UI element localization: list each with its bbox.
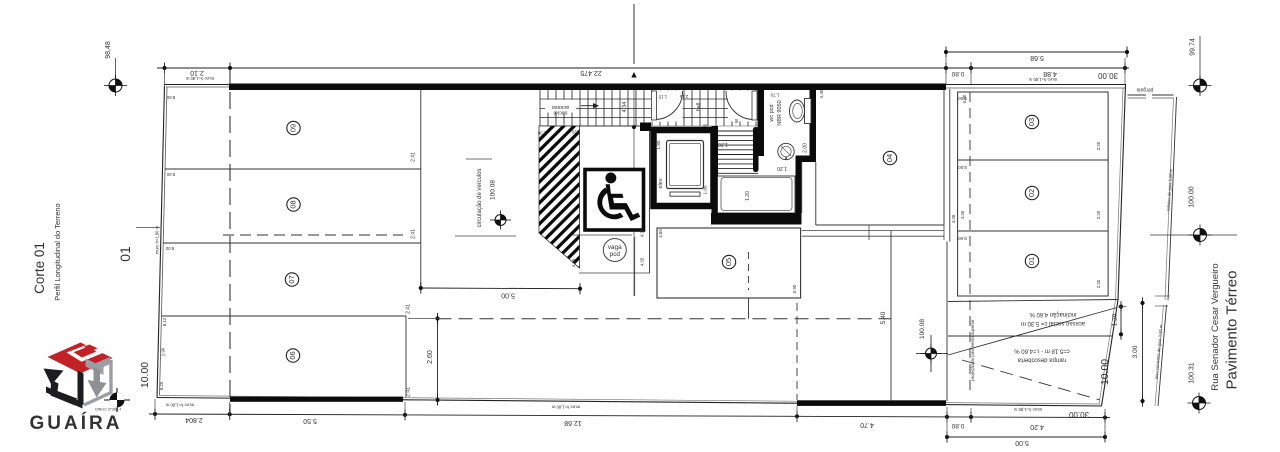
svg-text:2.41: 2.41 <box>411 229 417 239</box>
svg-text:2.20: 2.20 <box>1096 279 1101 288</box>
svg-text:muro h=1,80 m: muro h=1,80 m <box>1013 407 1042 412</box>
svg-text:Rua Senador Cesar Vergueiro: Rua Senador Cesar Vergueiro <box>1210 263 1221 390</box>
svg-text:2.20: 2.20 <box>1096 210 1101 219</box>
svg-text:NBR 9050: NBR 9050 <box>777 100 783 125</box>
svg-text:muro h=1,80 m: muro h=1,80 m <box>1028 77 1057 82</box>
svg-text:0.80: 0.80 <box>951 70 964 77</box>
svg-text:1.70: 1.70 <box>770 93 779 98</box>
svg-text:4.95: 4.95 <box>640 228 645 237</box>
svg-text:2.41: 2.41 <box>411 152 417 162</box>
svg-text:2.41: 2.41 <box>406 304 412 314</box>
svg-text:0.80: 0.80 <box>962 94 967 103</box>
svg-text:muro h=1,80 m: muro h=1,80 m <box>165 403 194 408</box>
svg-text:wc pcd: wc pcd <box>769 104 775 122</box>
svg-text:8.00: 8.00 <box>165 246 174 251</box>
svg-text:1.20: 1.20 <box>777 165 787 171</box>
svg-text:8.00: 8.00 <box>166 95 175 100</box>
svg-text:2.10: 2.10 <box>190 69 204 76</box>
svg-text:01: 01 <box>1027 257 1036 265</box>
svg-text:pcd: pcd <box>610 251 621 258</box>
svg-text:4.35: 4.35 <box>640 257 645 266</box>
svg-text:0.80: 0.80 <box>951 422 964 429</box>
svg-text:06: 06 <box>288 351 297 359</box>
svg-text:1.20: 1.20 <box>745 191 751 201</box>
svg-text:4.35: 4.35 <box>571 258 576 267</box>
svg-text:5.50: 5.50 <box>303 417 317 424</box>
svg-text:07: 07 <box>287 275 296 283</box>
svg-text:projeção do pavimento superior: projeção do pavimento superior <box>970 319 975 381</box>
svg-text:5.00: 5.00 <box>1015 439 1029 446</box>
svg-text:8.12: 8.12 <box>162 317 167 326</box>
svg-text:muro h=1,80 m: muro h=1,80 m <box>551 405 580 410</box>
svg-text:1.80: 1.80 <box>656 140 661 149</box>
svg-text:100.31: 100.31 <box>1189 362 1196 384</box>
svg-text:4.34: 4.34 <box>622 102 628 113</box>
svg-text:30.00: 30.00 <box>1097 71 1118 80</box>
svg-text:10.00: 10.00 <box>1099 359 1111 385</box>
svg-text:8.00: 8.00 <box>958 236 967 241</box>
svg-text:08: 08 <box>289 200 298 208</box>
svg-text:10.00: 10.00 <box>139 362 151 388</box>
svg-text:1.15: 1.15 <box>658 95 667 100</box>
svg-text:Perfil Longitudinal do Terreno: Perfil Longitudinal do Terreno <box>53 203 62 300</box>
svg-text:4.40: 4.40 <box>819 89 824 98</box>
svg-text:2.00: 2.00 <box>803 143 809 153</box>
svg-text:30.00: 30.00 <box>1068 410 1089 419</box>
svg-text:04: 04 <box>885 154 894 162</box>
svg-text:2.60: 2.60 <box>427 350 434 364</box>
svg-text:elev.: elev. <box>658 177 664 189</box>
svg-text:acesso social c= 5.30 m: acesso social c= 5.30 m <box>1021 320 1085 326</box>
svg-text:09: 09 <box>289 124 298 132</box>
svg-text:8.25: 8.25 <box>159 381 164 390</box>
svg-text:circulação de veículos: circulação de veículos <box>477 168 483 227</box>
svg-text:5.40: 5.40 <box>880 311 887 324</box>
svg-text:c=5.18 m - i.=4.60 %: c=5.18 m - i.=4.60 % <box>1014 348 1070 354</box>
svg-text:05: 05 <box>724 258 733 266</box>
svg-text:99.74: 99.74 <box>1190 38 1197 56</box>
svg-text:2.90: 2.90 <box>161 347 166 356</box>
svg-text:5.68: 5.68 <box>1030 54 1044 61</box>
svg-text:pérgula: pérgula <box>1136 87 1153 93</box>
svg-text:hall: hall <box>696 103 702 112</box>
svg-text:1.80: 1.80 <box>703 185 708 194</box>
svg-text:1.30: 1.30 <box>537 131 546 136</box>
svg-text:2.20: 2.20 <box>571 130 580 135</box>
svg-text:100.08: 100.08 <box>919 319 926 339</box>
svg-text:01: 01 <box>117 246 133 262</box>
svg-text:5.00: 5.00 <box>501 292 515 299</box>
svg-text:4.88: 4.88 <box>1043 70 1057 77</box>
svg-text:4.20: 4.20 <box>1030 423 1044 430</box>
svg-text:1.20: 1.20 <box>1112 313 1119 326</box>
svg-text:3.00: 3.00 <box>1132 345 1139 358</box>
svg-text:100.08: 100.08 <box>490 180 497 200</box>
svg-text:98,48: 98,48 <box>105 41 112 59</box>
svg-text:2.41: 2.41 <box>406 387 412 397</box>
svg-text:muro h=1,80 m: muro h=1,80 m <box>155 225 160 254</box>
svg-text:CRECI 27399-J: CRECI 27399-J <box>95 408 122 412</box>
svg-text:100.00: 100.00 <box>1189 186 1196 208</box>
svg-text:02: 02 <box>1027 189 1036 197</box>
svg-text:2.15: 2.15 <box>679 94 688 99</box>
svg-text:22.475: 22.475 <box>580 69 602 76</box>
svg-text:0.90: 0.90 <box>792 284 797 293</box>
svg-text:vaga: vaga <box>608 244 622 251</box>
svg-text:GUAÍRA: GUAÍRA <box>30 412 123 434</box>
svg-text:muro h=1,80 m: muro h=1,80 m <box>185 76 214 81</box>
svg-text:12.68: 12.68 <box>564 419 582 426</box>
svg-text:4.70: 4.70 <box>860 421 874 428</box>
svg-text:2.804: 2.804 <box>185 416 203 423</box>
svg-text:8.00: 8.00 <box>166 172 175 177</box>
svg-text:2.20: 2.20 <box>1096 141 1101 150</box>
svg-text:4.55: 4.55 <box>658 229 663 238</box>
svg-text:8.00: 8.00 <box>958 165 967 170</box>
svg-text:inclinação 4.60 %: inclinação 4.60 % <box>1029 311 1077 317</box>
svg-text:4.36: 4.36 <box>960 210 965 219</box>
svg-text:Pavimento Térreo: Pavimento Térreo <box>1224 271 1241 390</box>
svg-text:rampa descoberta: rampa descoberta <box>1017 357 1066 363</box>
svg-text:Corte 01: Corte 01 <box>32 242 47 294</box>
svg-text:1.20: 1.20 <box>718 141 728 147</box>
svg-text:03: 03 <box>1027 118 1036 126</box>
svg-text:acesso: acesso <box>552 104 569 110</box>
svg-text:90: 90 <box>734 118 739 123</box>
svg-text:social: social <box>553 110 567 116</box>
svg-text:4.35: 4.35 <box>951 214 956 223</box>
